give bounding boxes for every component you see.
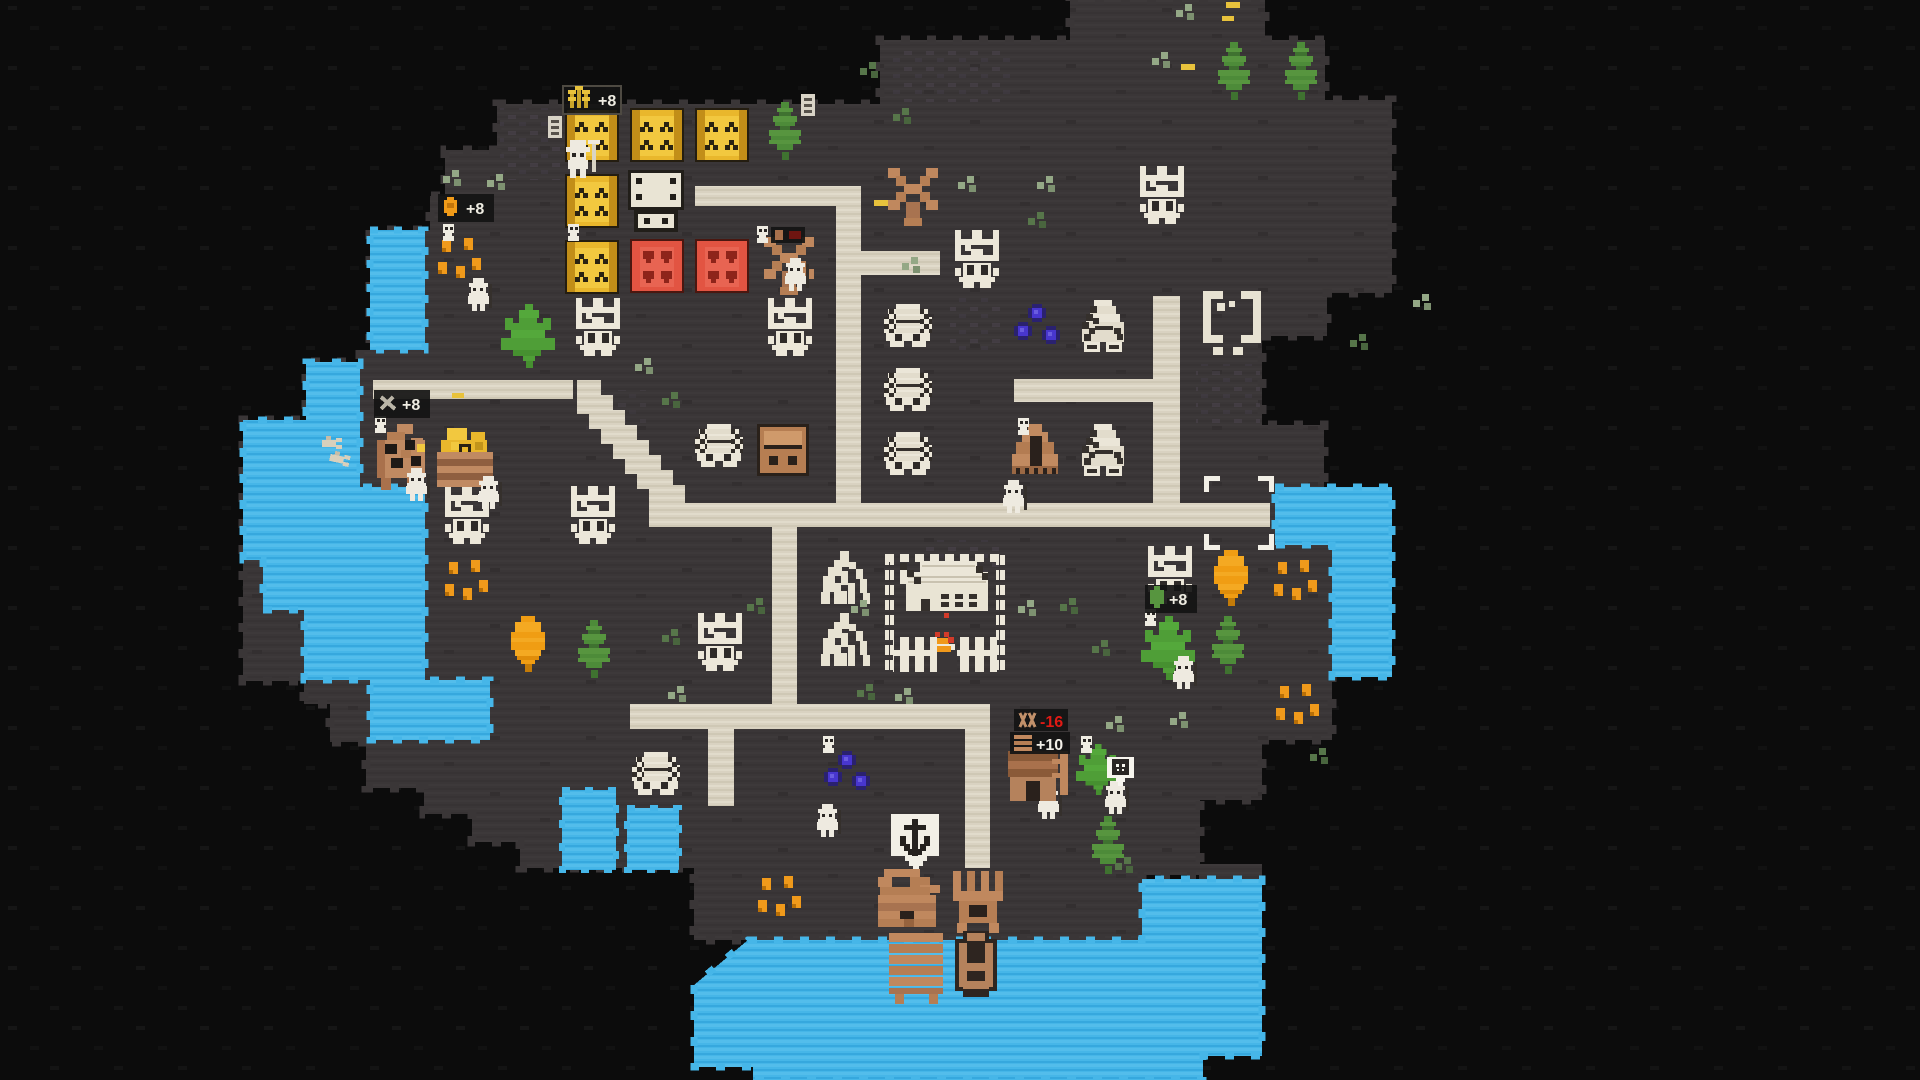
svg-text:+8: +8 <box>466 201 484 218</box>
svg-text:+8: +8 <box>1169 592 1187 609</box>
svg-text:+8: +8 <box>402 397 420 414</box>
svg-text:-16: -16 <box>1040 714 1063 731</box>
svg-text:+10: +10 <box>1036 737 1063 754</box>
svg-text:+8: +8 <box>598 93 616 110</box>
